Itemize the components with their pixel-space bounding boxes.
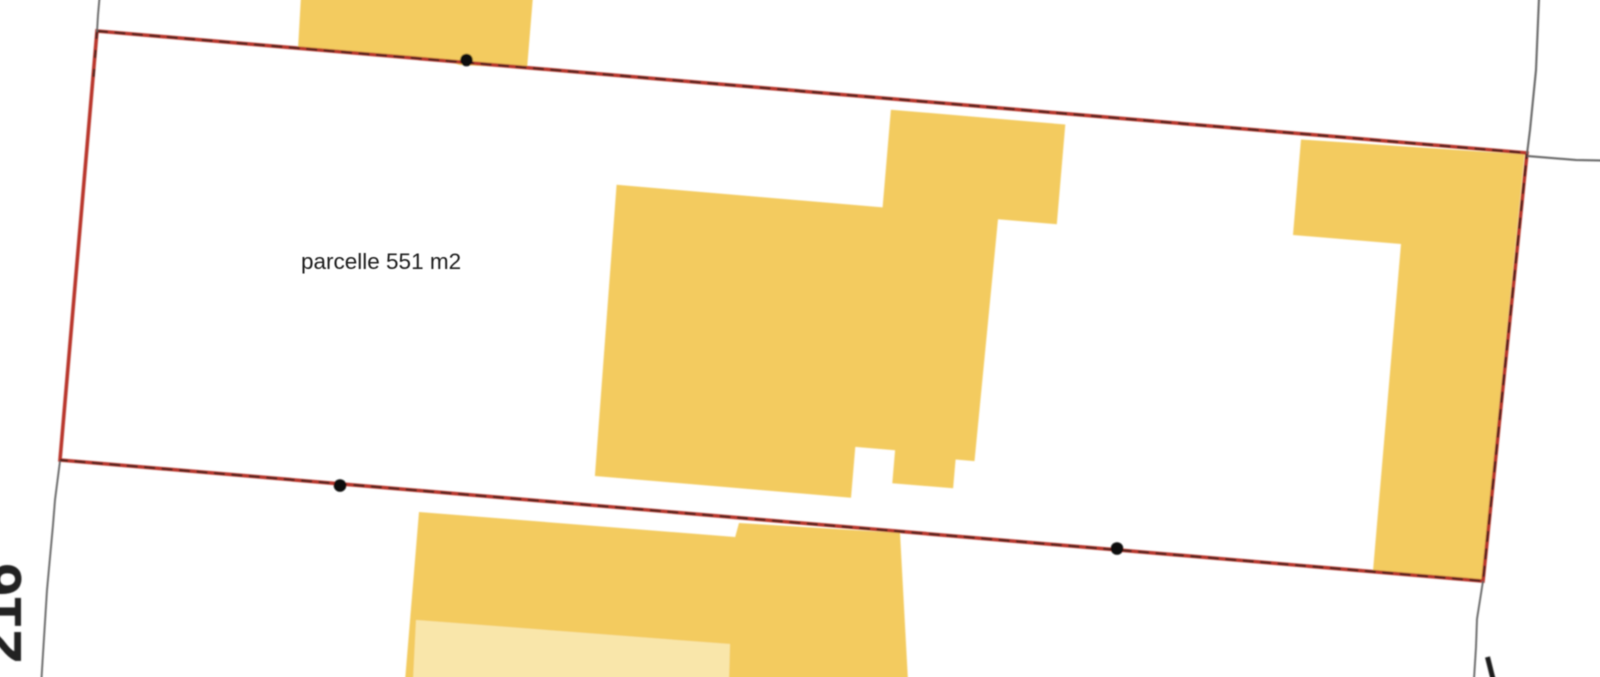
svg-text:216: 216	[0, 563, 34, 663]
svg-text:parcelle 551 m2: parcelle 551 m2	[301, 249, 461, 274]
